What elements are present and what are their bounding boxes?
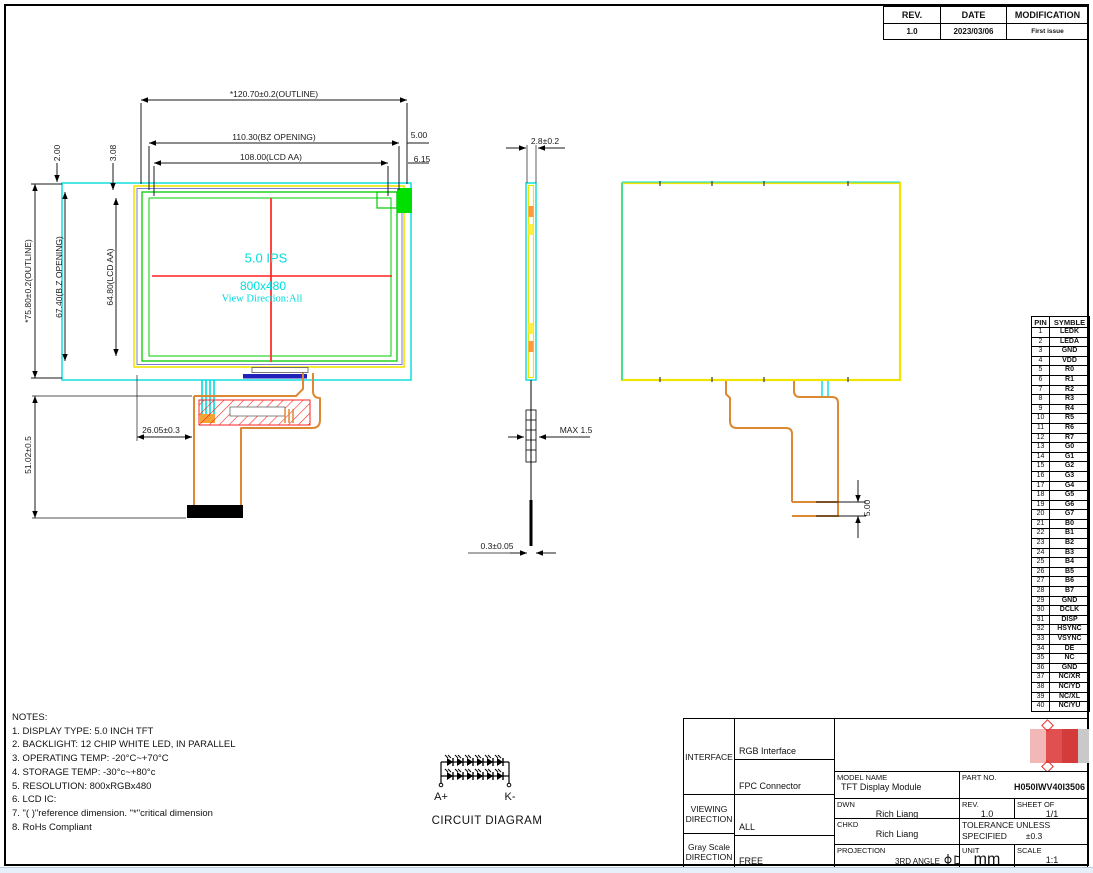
pin-number: 22 [1032,529,1050,539]
modification-header: MODIFICATION [1007,7,1089,24]
chkd-cell: CHKD Rich Liang [834,818,959,844]
dimension-label: 67.40(B.Z OPENING) [54,236,64,318]
pin-number: 2 [1032,337,1050,347]
pin-row: 39 NC/XL [1032,692,1090,702]
pin-number: 25 [1032,558,1050,568]
pin-number: 24 [1032,548,1050,558]
pin-number: 30 [1032,606,1050,616]
pin-symbol: B0 [1050,519,1090,529]
notes-title: NOTES: [12,711,292,725]
pin-symbol: G3 [1050,471,1090,481]
front-dimensions [31,100,429,518]
pin-number: 40 [1032,702,1050,712]
pin-row: 3 GND [1032,347,1090,357]
rear-dimensions [816,480,866,538]
dimension-label: 5.00 [862,500,872,517]
rev-cell: REV. 1.0 [959,798,1014,818]
pin-number: 16 [1032,471,1050,481]
pin-symbol: R0 [1050,366,1090,376]
pin-row: 36 GND [1032,663,1090,673]
circuit-diagram [439,755,511,787]
dimension-label: 2.00 [52,145,62,162]
dimension-label: MAX 1.5 [560,425,593,435]
revision-table: REV. DATE MODIFICATION 1.0 2023/03/06 Fi… [883,6,1089,40]
dimension-label: 3.08 [108,145,118,162]
pin-row: 29 GND [1032,596,1090,606]
pin-number: 18 [1032,491,1050,501]
viewing-direction-value-cell: ALL [734,794,834,835]
pin-row: 18 G5 [1032,491,1090,501]
pin-number: 36 [1032,663,1050,673]
pin-number: 26 [1032,567,1050,577]
interface-fpc-cell: FPC Connector [734,759,834,794]
pin-symbol: G4 [1050,481,1090,491]
pin-row: 15 G2 [1032,462,1090,472]
screen-size-label: 5.0 IPS [245,251,288,266]
note-line: 5. RESOLUTION: 800xRGBx480 [12,780,292,794]
pin-symbol: VDD [1050,356,1090,366]
pin-number: 15 [1032,462,1050,472]
pin-number: 28 [1032,587,1050,597]
pin-number: 39 [1032,692,1050,702]
pin-row: 30 DCLK [1032,606,1090,616]
circuit-diagram-caption: CIRCUIT DIAGRAM [432,815,543,827]
pin-row: 10 R5 [1032,414,1090,424]
pin-symbol: G1 [1050,452,1090,462]
pin-symbol: VSYNC [1050,635,1090,645]
dwn-cell: DWN Rich Liang [834,798,959,818]
logo-redacted [1030,729,1089,763]
pin-symbol: B3 [1050,548,1090,558]
note-line: 7. "( )"reference dimension. "*"critical… [12,807,292,821]
pin-symbol: LEDA [1050,337,1090,347]
cathode-label: K- [505,791,516,803]
pin-symbol: R2 [1050,385,1090,395]
pin-row: 35 NC [1032,654,1090,664]
dimension-label: 51.02±0.5 [23,436,33,474]
pin-row: 32 HSYNC [1032,625,1090,635]
pin-symbol: B7 [1050,587,1090,597]
pin-row: 40 NC/YU [1032,702,1090,712]
pin-number: 32 [1032,625,1050,635]
pin-number: 4 [1032,356,1050,366]
pin-symbol: R6 [1050,423,1090,433]
pin-number: 10 [1032,414,1050,424]
pin-number: 37 [1032,673,1050,683]
interface-rgb-cell: RGB Interface [734,719,834,759]
tolerance-cell: TOLERANCE UNLESS SPECIFIED ±0.3 [959,818,1089,844]
pin-row: 27 B6 [1032,577,1090,587]
sheet-cell: SHEET OF 1/1 [1014,798,1089,818]
anode-label: A+ [434,791,448,803]
dimension-label: 5.00 [411,130,428,140]
dimension-label: 64.80(LCD AA) [105,248,115,305]
pin-row: 38 NC/YD [1032,682,1090,692]
pin-row: 8 R3 [1032,395,1090,405]
pin-number: 6 [1032,375,1050,385]
modification-value: First issue [1007,24,1089,40]
rear-view [622,181,900,517]
pin-row: 12 R7 [1032,433,1090,443]
pin-symbol: GND [1050,663,1090,673]
pin-row: 9 R4 [1032,404,1090,414]
pin-symbol: B5 [1050,567,1090,577]
pin-symbol: R1 [1050,375,1090,385]
pin-symbol: B1 [1050,529,1090,539]
dimension-label: 2.8±0.2 [531,136,559,146]
dimension-label: *75.80±0.2(OUTLINE) [23,239,33,323]
pin-number: 14 [1032,452,1050,462]
gray-scale-value-cell: FREE [734,835,834,869]
pin-row: 31 DISP [1032,615,1090,625]
pin-symbol: R4 [1050,404,1090,414]
pin-row: 7 R2 [1032,385,1090,395]
symbol-col-header: SYMBLE [1050,317,1090,328]
pin-number: 34 [1032,644,1050,654]
pin-number: 33 [1032,635,1050,645]
note-line: 4. STORAGE TEMP: -30°c~+80°c [12,766,292,780]
logo-cell [834,719,1089,771]
pin-number: 11 [1032,423,1050,433]
pin-row: 25 B4 [1032,558,1090,568]
pin-row: 19 G6 [1032,500,1090,510]
pin-row: 13 G0 [1032,443,1090,453]
pin-row: 6 R1 [1032,375,1090,385]
pin-row: 22 B1 [1032,529,1090,539]
pin-symbol: R5 [1050,414,1090,424]
pin-number: 21 [1032,519,1050,529]
pin-col-header: PIN [1032,317,1050,328]
note-line: 8. RoHs Compliant [12,821,292,835]
pin-symbol: G2 [1050,462,1090,472]
pin-number: 27 [1032,577,1050,587]
screen-resolution-label: 800x480 [240,279,286,293]
pin-row: 1 LEDK [1032,328,1090,338]
pin-row: 23 B2 [1032,539,1090,549]
notes-block: NOTES: 1. DISPLAY TYPE: 5.0 INCH TFT2. B… [12,711,292,834]
projection-cell: PROJECTION 3RD ANGLE [834,844,959,869]
pin-number: 9 [1032,404,1050,414]
pin-number: 3 [1032,347,1050,357]
dimension-label: *120.70±0.2(OUTLINE) [230,89,318,99]
model-name-cell: MODEL NAME TFT Display Module [834,771,959,798]
pin-row: 24 B3 [1032,548,1090,558]
title-block: INTERFACE RGB Interface FPC Connector VI… [683,718,1088,868]
drawing-sheet: *120.70±0.2(OUTLINE)110.30(BZ OPENING)10… [0,0,1093,873]
pin-symbol: G5 [1050,491,1090,501]
pin-row: 16 G3 [1032,471,1090,481]
pin-number: 19 [1032,500,1050,510]
gray-scale-label-cell: Gray ScaleDIRECTION [684,833,734,869]
date-value: 2023/03/06 [941,24,1007,40]
pin-row: 28 B7 [1032,587,1090,597]
date-header: DATE [941,7,1007,24]
pin-number: 12 [1032,433,1050,443]
pin-symbol: DISP [1050,615,1090,625]
pin-symbol: R7 [1050,433,1090,443]
pin-table: PIN SYMBLE 1 LEDK 2 LEDA 3 GND [1031,316,1090,712]
pin-number: 20 [1032,510,1050,520]
pin-symbol: G0 [1050,443,1090,453]
pin-number: 7 [1032,385,1050,395]
pin-row: 26 B5 [1032,567,1090,577]
note-line: 6. LCD IC: [12,793,292,807]
unit-cell: UNIT mm [959,844,1014,869]
side-view [526,183,536,546]
front-view [62,183,412,518]
pin-number: 8 [1032,395,1050,405]
third-angle-projection-icon [942,854,959,866]
pin-row: 11 R6 [1032,423,1090,433]
viewing-direction-label-cell: VIEWINGDIRECTION [684,794,734,833]
pin-symbol: B4 [1050,558,1090,568]
pin-number: 1 [1032,328,1050,338]
scale-cell: SCALE 1:1 [1014,844,1089,869]
dimension-label: 0.3±0.05 [480,541,513,551]
pin-symbol: G6 [1050,500,1090,510]
pin-row: 4 VDD [1032,356,1090,366]
note-line: 3. OPERATING TEMP: -20°C~+70°C [12,752,292,766]
pin-symbol: DE [1050,644,1090,654]
note-line: 2. BACKLIGHT: 12 CHIP WHITE LED, IN PARA… [12,738,292,752]
pin-row: 17 G4 [1032,481,1090,491]
pin-row: 37 NC/XR [1032,673,1090,683]
pin-symbol: B6 [1050,577,1090,587]
pin-number: 17 [1032,481,1050,491]
rev-header: REV. [884,7,941,24]
pin-symbol: NC/YU [1050,702,1090,712]
pin-symbol: GND [1050,596,1090,606]
pin-symbol: NC/YD [1050,682,1090,692]
pin-symbol: DCLK [1050,606,1090,616]
pin-symbol: NC/XR [1050,673,1090,683]
pin-number: 23 [1032,539,1050,549]
pin-row: 33 VSYNC [1032,635,1090,645]
dimension-label: 6.15 [414,154,431,164]
pin-symbol: R3 [1050,395,1090,405]
pin-row: 14 G1 [1032,452,1090,462]
part-no-cell: PART NO. H050IWV40I3506 [959,771,1089,798]
pin-symbol: NC/XL [1050,692,1090,702]
pin-symbol: LEDK [1050,328,1090,338]
pin-number: 38 [1032,682,1050,692]
pin-number: 35 [1032,654,1050,664]
pin-number: 31 [1032,615,1050,625]
pin-symbol: HSYNC [1050,625,1090,635]
interface-label-cell: INTERFACE [684,719,734,794]
dimension-label: 108.00(LCD AA) [240,152,302,162]
pin-number: 13 [1032,443,1050,453]
rev-value: 1.0 [884,24,941,40]
pin-symbol: GND [1050,347,1090,357]
view-direction-label: View Direction:All [222,294,303,305]
pin-row: 21 B0 [1032,519,1090,529]
pin-symbol: NC [1050,654,1090,664]
pin-number: 29 [1032,596,1050,606]
dimension-label: 26.05±0.3 [142,425,180,435]
pin-number: 5 [1032,366,1050,376]
pin-row: 5 R0 [1032,366,1090,376]
pin-row: 2 LEDA [1032,337,1090,347]
window-bottom-strip [0,867,1093,873]
pin-symbol: B2 [1050,539,1090,549]
pin-row: 20 G7 [1032,510,1090,520]
dimension-label: 110.30(BZ OPENING) [232,132,315,142]
note-line: 1. DISPLAY TYPE: 5.0 INCH TFT [12,725,292,739]
pin-row: 34 DE [1032,644,1090,654]
pin-symbol: G7 [1050,510,1090,520]
